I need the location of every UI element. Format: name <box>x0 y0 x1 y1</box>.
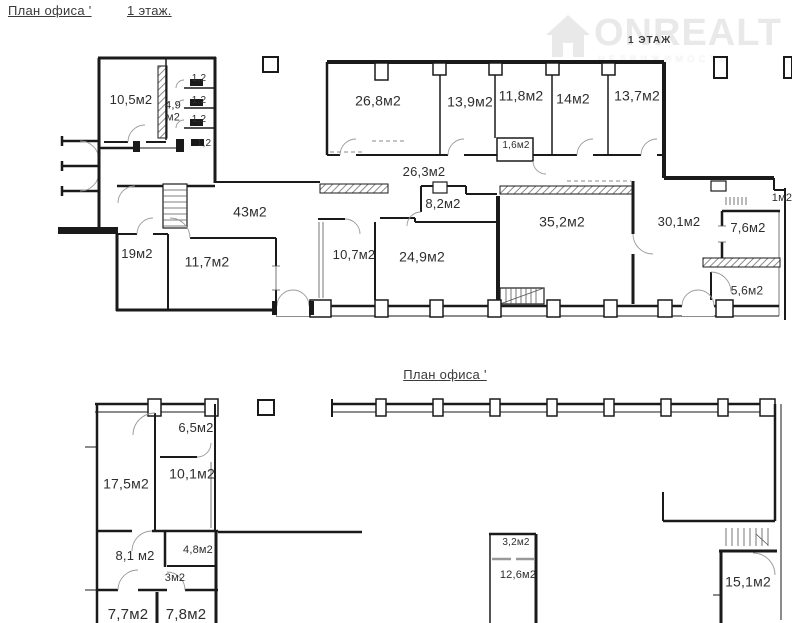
room-label-6-5: 6,5м2 <box>178 421 213 435</box>
double-door-right <box>682 290 714 316</box>
room-label-10-5: 10,5м2 <box>110 93 153 107</box>
room-label-11-8: 11,8м2 <box>499 89 544 104</box>
stall-label-3: 1,2 <box>192 115 207 126</box>
room-label-4-8: 4,8м2 <box>183 545 213 557</box>
room-label-11-7: 11,7м2 <box>185 255 230 270</box>
stall-label-1: 1,2 <box>192 74 207 85</box>
room-label-24-9: 24,9м2 <box>399 250 445 265</box>
floor1-drawing <box>58 57 792 320</box>
stall-label-4: 1,2 <box>197 139 212 150</box>
staircase-2 <box>500 288 544 304</box>
room-label-3-2: 3,2м2 <box>502 538 529 549</box>
stall-label-2: 1,2 <box>192 96 207 107</box>
double-door-left <box>272 290 314 316</box>
room-label-3: 3м2 <box>165 573 185 585</box>
room-label-13-9: 13,9м2 <box>447 95 493 110</box>
floorplan-page: ONREALT НЕДВИЖИМОСТЬ 1 ЭТАЖ План офиса '… <box>0 0 792 623</box>
room-label-14: 14м2 <box>556 92 590 107</box>
toilet-fixtures <box>190 79 204 146</box>
staircase-1 <box>163 184 187 228</box>
room-label-26-8: 26,8м2 <box>355 94 401 109</box>
room-label-4-9: 4,9 м2 <box>165 100 181 123</box>
room-label-1-6: 1,6м2 <box>502 141 529 152</box>
free-column <box>258 400 274 415</box>
room-label-5-6: 5,6м2 <box>731 285 764 298</box>
room-label-12-6: 12,6м2 <box>500 570 536 582</box>
room-label-43: 43м2 <box>233 205 267 220</box>
room-label-19: 19м2 <box>121 247 152 261</box>
room-label-30-1: 30,1м2 <box>658 215 701 229</box>
wall-bar <box>58 227 118 234</box>
room-label-7-7: 7,7м2 <box>108 607 149 623</box>
room-label-15-1: 15,1м2 <box>725 575 771 590</box>
room-label-8-1: 8,1 м2 <box>115 549 154 563</box>
window-pillars-band1 <box>148 399 218 416</box>
room-label-17-5: 17,5м2 <box>103 477 149 492</box>
room-label-35-2: 35,2м2 <box>539 215 585 230</box>
window-pillars-band2 <box>376 399 775 416</box>
room-label-1: 1м2 <box>772 193 792 205</box>
room-label-26-3: 26,3м2 <box>403 165 446 179</box>
room-label-7-6: 7,6м2 <box>730 221 765 235</box>
room-label-13-7: 13,7м2 <box>614 89 660 104</box>
room-label-10-7: 10,7м2 <box>333 248 376 262</box>
room-label-10-1: 10,1м2 <box>169 467 215 482</box>
room-label-8-2: 8,2м2 <box>425 197 460 211</box>
room-label-7-8: 7,8м2 <box>166 607 207 623</box>
